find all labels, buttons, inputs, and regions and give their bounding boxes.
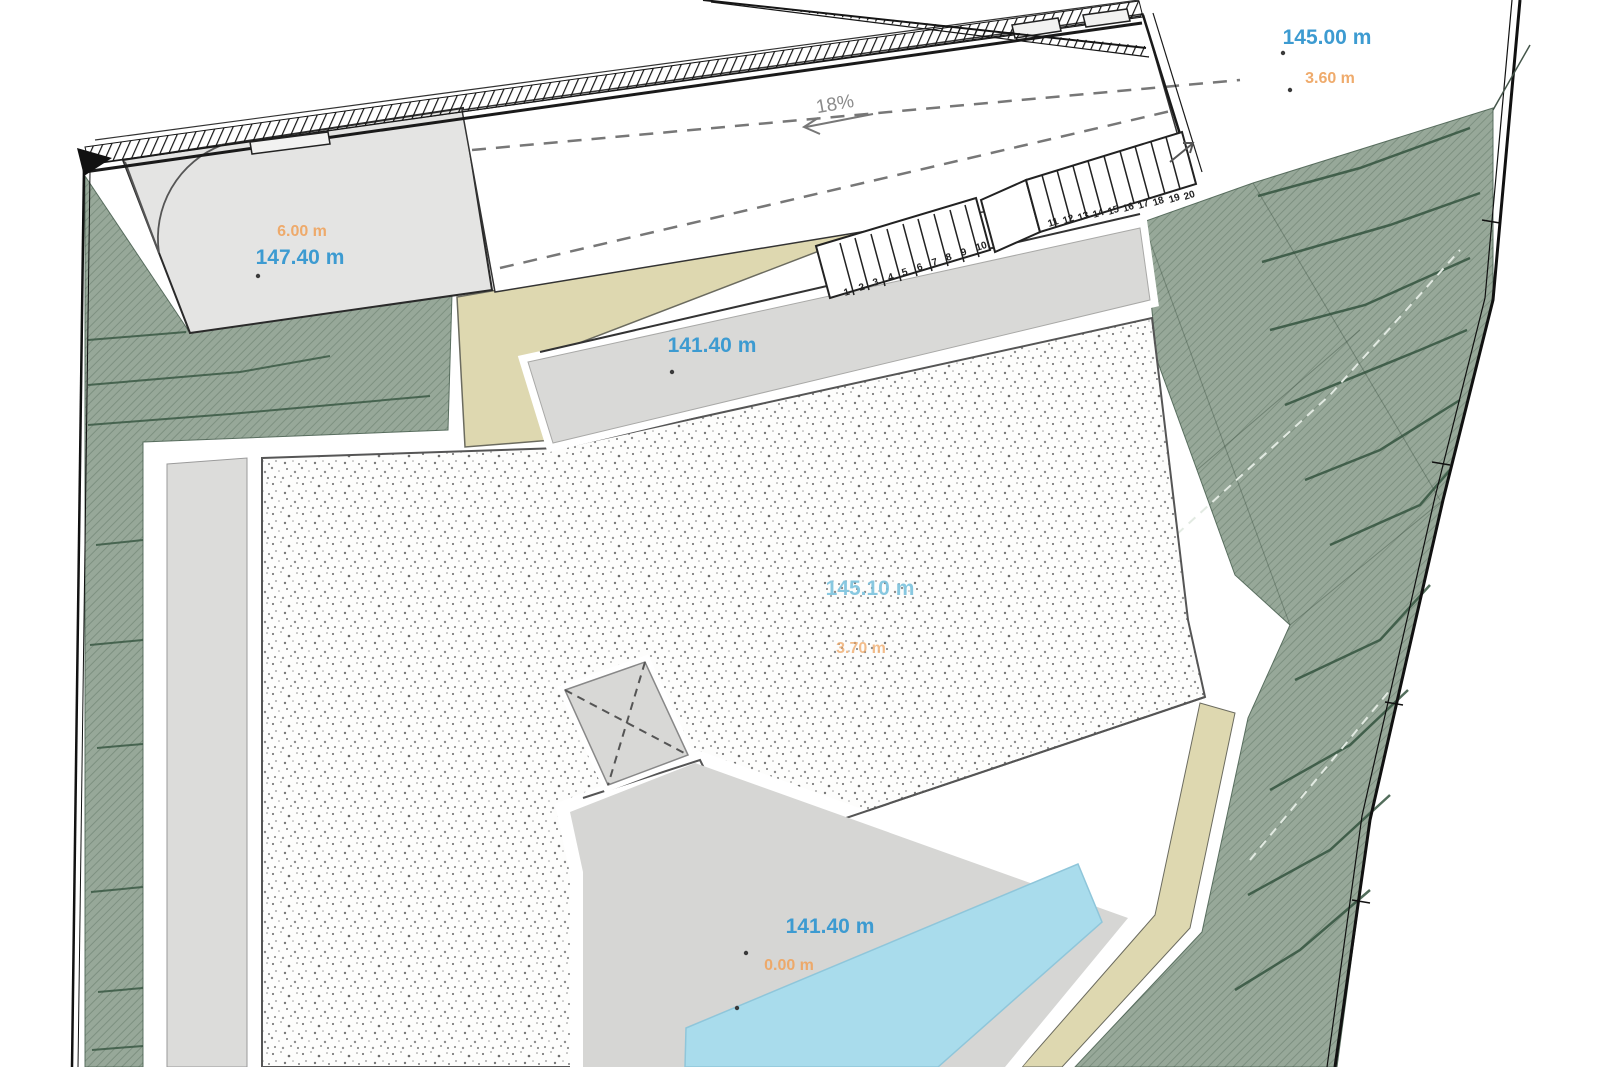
label-driveway-elevation: 147.40 m [256, 246, 345, 269]
retaining-path-strip [167, 458, 247, 1067]
site-plan-canvas: 1 2 3 4 5 6 7 8 9 10 11 12 13 14 15 16 1… [0, 0, 1600, 1067]
site-plan-drawing: 1 2 3 4 5 6 7 8 9 10 11 12 13 14 15 16 1… [0, 0, 1600, 1067]
label-walkway-elevation: 141.40 m [668, 334, 757, 357]
label-driveway-height: 6.00 m [277, 223, 327, 240]
label-street-elevation: 145.00 m [1283, 26, 1372, 49]
label-courtyard-depth: 0.00 m [764, 957, 814, 974]
label-street-depth: 3.60 m [1305, 70, 1355, 87]
label-roof-depth: 3.70 m [836, 640, 886, 657]
label-roof-elevation: 145.10 m [826, 577, 915, 600]
label-courtyard-elevation: 141.40 m [786, 915, 875, 938]
